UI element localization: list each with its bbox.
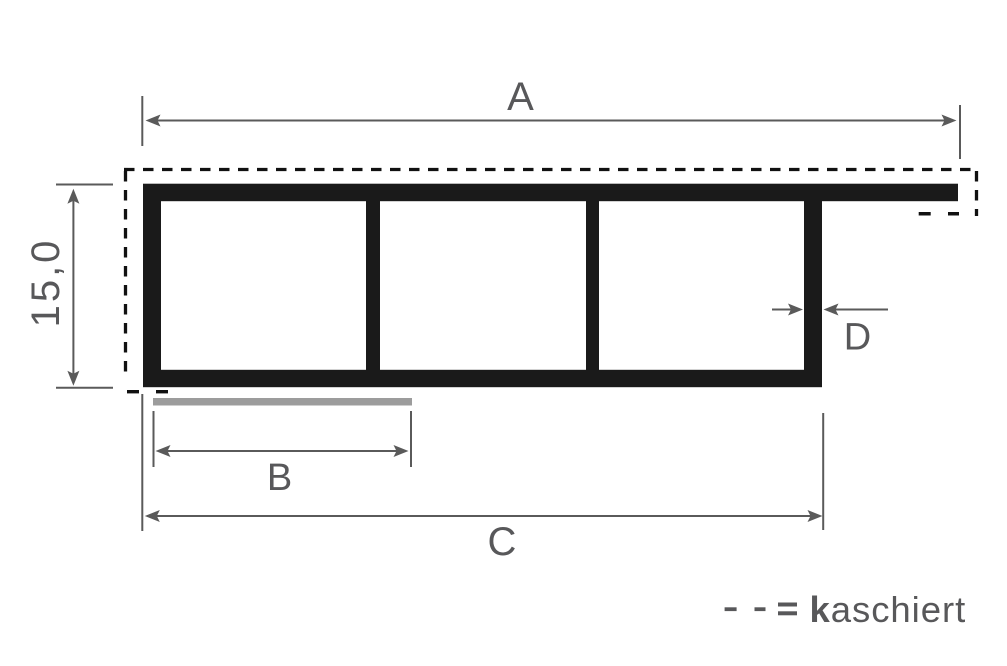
svg-text:B: B bbox=[267, 457, 292, 499]
svg-text:C: C bbox=[488, 520, 517, 564]
svg-text:A: A bbox=[507, 75, 534, 119]
svg-text:D: D bbox=[844, 317, 871, 359]
svg-text:kaschiert: kaschiert bbox=[810, 589, 967, 630]
svg-text:15,0: 15,0 bbox=[24, 238, 68, 328]
